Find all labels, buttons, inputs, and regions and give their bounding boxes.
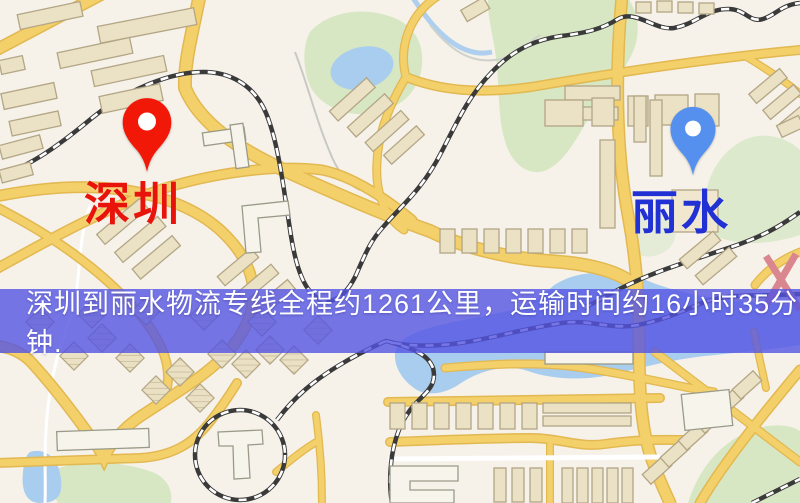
banner-text: 深圳到丽水物流专线全程约1261公里，运输时间约16小时35分钟. bbox=[26, 282, 800, 360]
origin-city-label: 深圳 bbox=[84, 168, 182, 234]
map-canvas[interactable]: 深圳 丽水 深圳到丽水物流专线全程约1261公里，运输时间约16小时35分钟. bbox=[0, 0, 800, 503]
map-graphic bbox=[0, 0, 800, 503]
origin-pin-icon[interactable] bbox=[120, 96, 174, 174]
info-banner: 深圳到丽水物流专线全程约1261公里，运输时间约16小时35分钟. bbox=[0, 289, 800, 353]
minor-road bbox=[388, 457, 660, 459]
destination-pin-icon[interactable] bbox=[668, 102, 718, 180]
destination-city-label: 丽水 bbox=[631, 174, 731, 243]
